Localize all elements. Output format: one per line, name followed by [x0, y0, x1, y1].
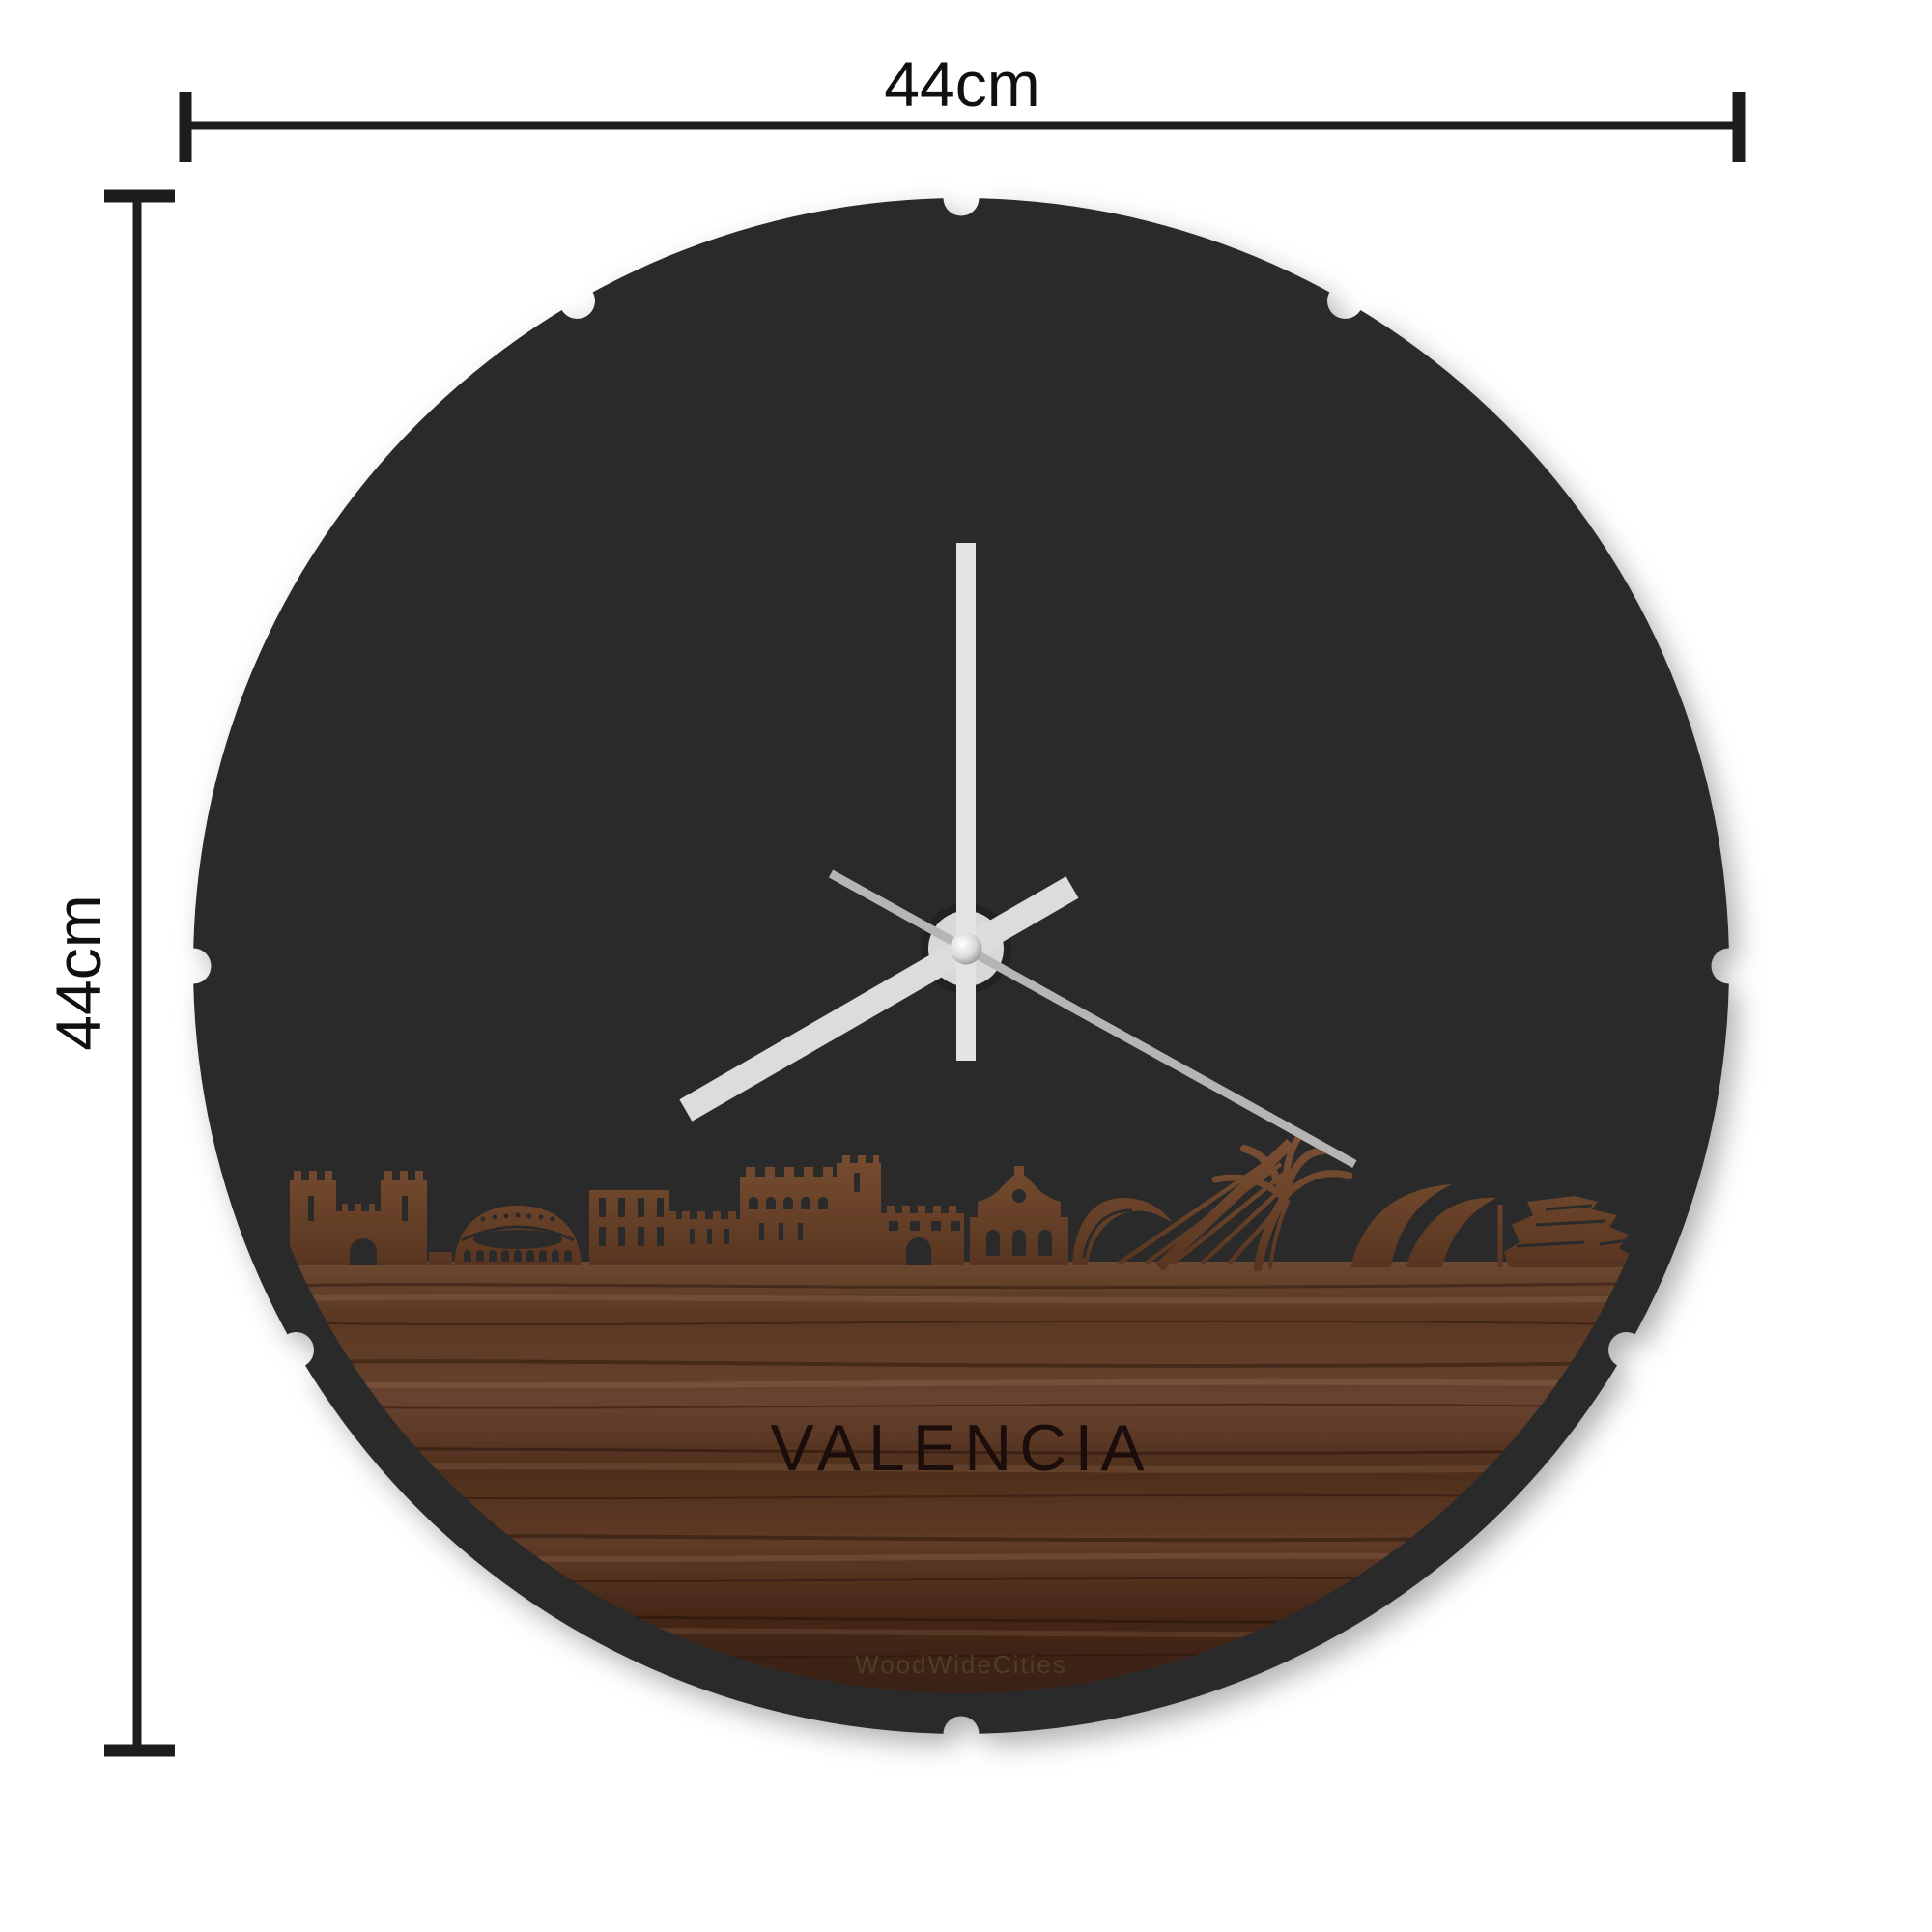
- width-dimension-line: [185, 122, 1739, 130]
- height-dimension-line: [133, 196, 142, 1750]
- width-dimension-cap-left: [180, 92, 192, 162]
- low-wall: [429, 1252, 452, 1265]
- bullring-arena-oval: [473, 1230, 562, 1249]
- brand-watermark: WoodWideCities: [855, 1650, 1067, 1679]
- hands-center-cap: [951, 933, 982, 965]
- width-dimension: 44cm: [180, 48, 1746, 162]
- height-dimension-label: 44cm: [43, 895, 114, 1050]
- height-dimension: 44cm: [43, 190, 175, 1757]
- width-dimension-label: 44cm: [884, 48, 1039, 120]
- minute-hand: [956, 543, 976, 1061]
- city-name-engraving: VALENCIA: [770, 1411, 1151, 1485]
- height-dimension-cap-top: [104, 190, 175, 203]
- product-dimension-diagram: 44cm 44cm: [0, 0, 1932, 1932]
- height-dimension-cap-bottom: [104, 1745, 175, 1757]
- width-dimension-cap-right: [1733, 92, 1746, 162]
- clock: VALENCIA WoodWideCities: [193, 198, 1729, 1734]
